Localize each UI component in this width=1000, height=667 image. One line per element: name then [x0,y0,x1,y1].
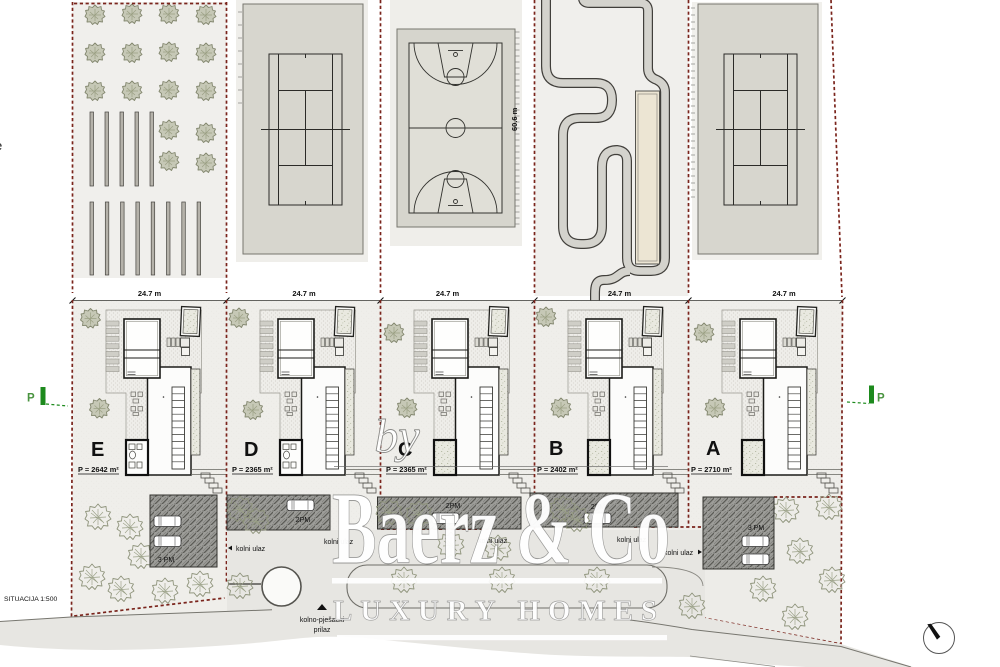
svg-text:24.7 m: 24.7 m [138,289,162,298]
svg-text:prilaz: prilaz [314,627,331,634]
svg-text:by: by [374,410,420,463]
svg-text:24.7 m: 24.7 m [772,289,796,298]
svg-text:A: A [706,438,720,460]
svg-text:P: P [27,393,35,405]
svg-text:Baerz & Co: Baerz & Co [332,471,670,586]
svg-text:24.7 m: 24.7 m [436,289,460,298]
svg-text:P = 2365 m²: P = 2365 m² [232,465,273,474]
svg-text:3 PM: 3 PM [158,557,175,564]
svg-text:P = 2642 m²: P = 2642 m² [78,465,119,474]
svg-text:60.6 m: 60.6 m [510,107,519,131]
svg-text:B: B [549,438,563,460]
svg-text:e: e [0,138,2,153]
svg-text:E: E [91,439,104,461]
svg-text:SITUACIJA 1:500: SITUACIJA 1:500 [4,596,57,603]
svg-text:LUXURY HOMES: LUXURY HOMES [333,595,667,627]
svg-text:P: P [877,393,885,405]
svg-text:P = 2710 m²: P = 2710 m² [691,465,732,474]
svg-text:24.7 m: 24.7 m [292,289,316,298]
svg-text:3 PM: 3 PM [748,525,765,532]
svg-text:2PM: 2PM [296,517,311,524]
svg-text:D: D [244,439,258,461]
svg-text:kolni ulaz: kolni ulaz [236,546,266,553]
svg-text:24.7 m: 24.7 m [608,289,632,298]
